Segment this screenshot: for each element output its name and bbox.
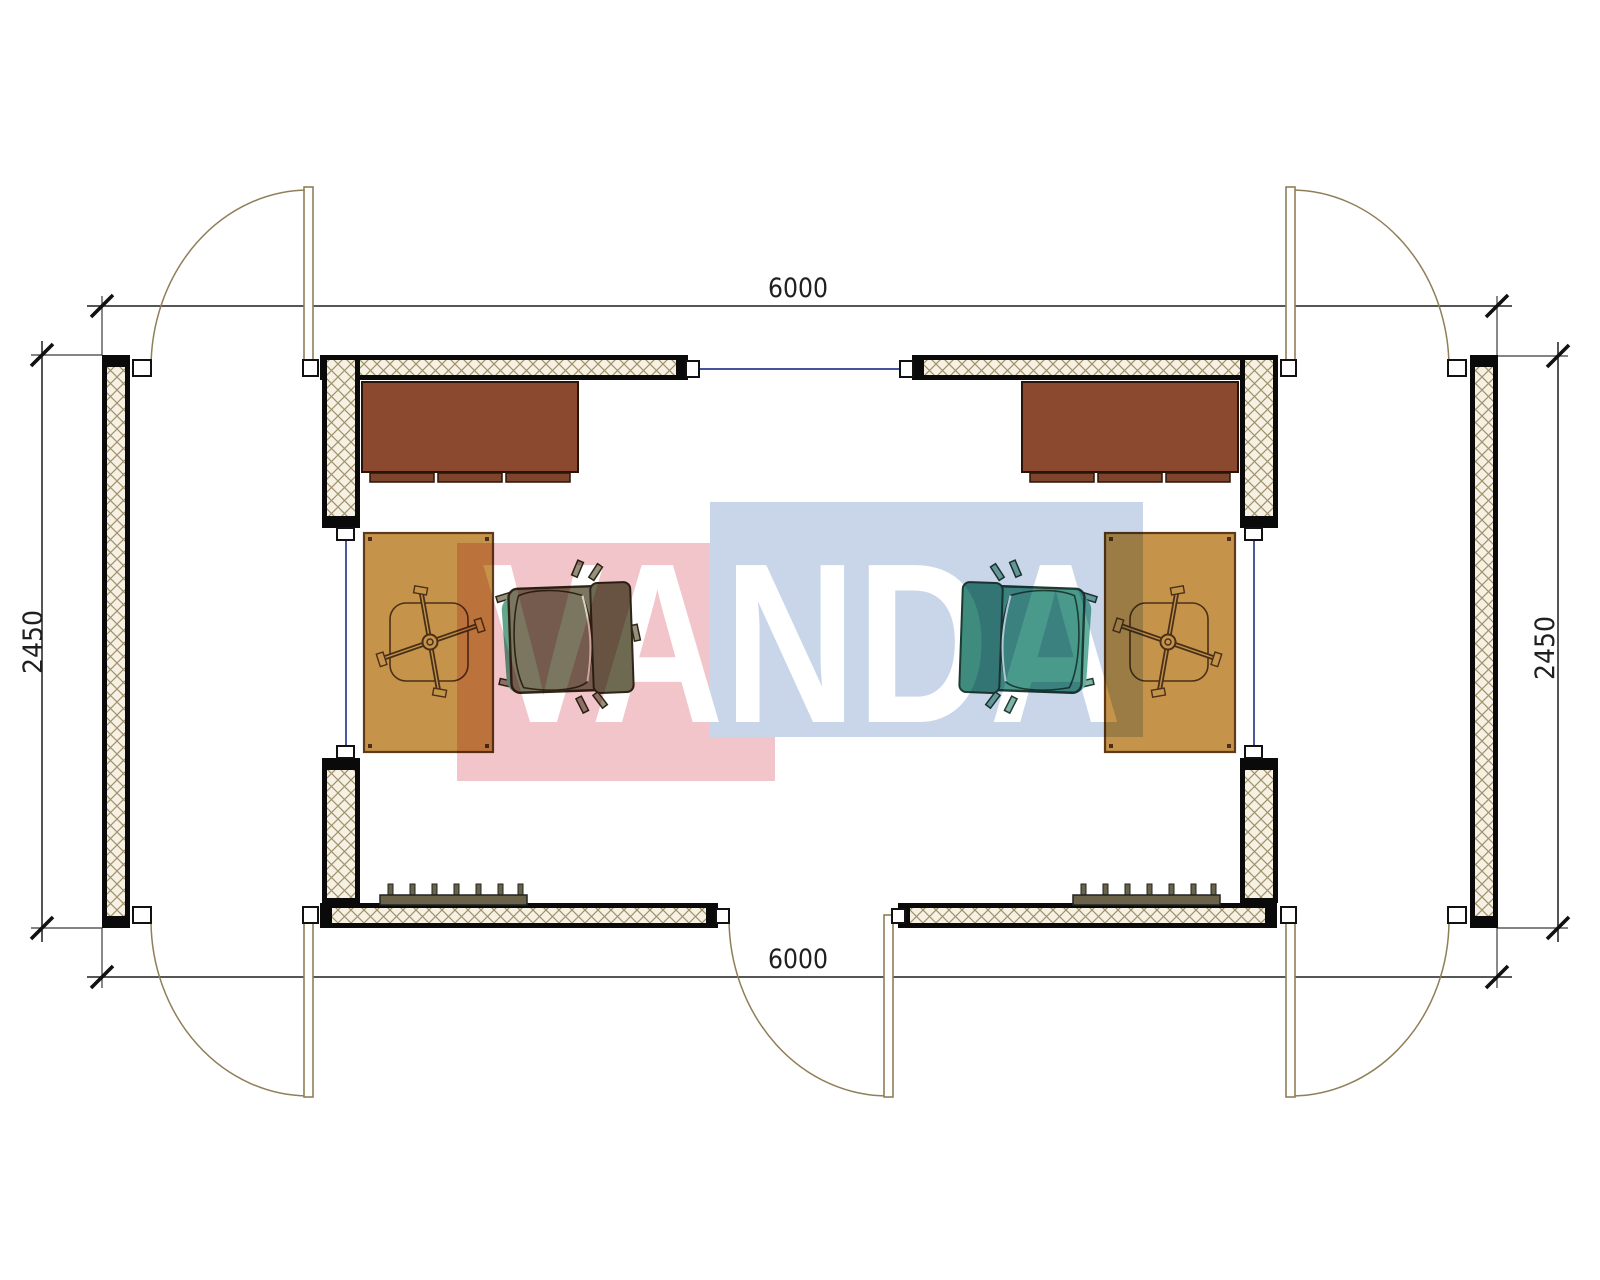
chair-hub bbox=[1161, 635, 1176, 650]
door-frame-block bbox=[716, 909, 729, 923]
dim-label-right-2450: 2450 bbox=[1530, 616, 1561, 680]
window-connector bbox=[337, 528, 354, 540]
door-arc-bottom-left bbox=[151, 921, 308, 1096]
chair-caster bbox=[1151, 688, 1165, 697]
door-frame-block bbox=[133, 360, 151, 376]
wall-partition-left-top bbox=[322, 355, 360, 528]
wall-partition-right-bottom bbox=[1240, 758, 1278, 903]
chair-caster bbox=[433, 688, 447, 697]
radiator-right bbox=[1073, 884, 1220, 905]
dim-label-left-2450: 2450 bbox=[18, 610, 49, 674]
wall-bottom-right bbox=[898, 903, 1277, 928]
door-frame-block bbox=[303, 907, 318, 923]
door-leaf-top-left bbox=[304, 187, 313, 368]
door-leaf-bottom-left bbox=[304, 915, 313, 1097]
floor-plan-screenshot: 6000 6000 2450 2450 bbox=[0, 0, 1600, 1280]
door-frame-block bbox=[1448, 360, 1466, 376]
door-arc-top-right bbox=[1291, 190, 1449, 368]
radiator-left bbox=[380, 884, 527, 905]
desk-drawer bbox=[438, 473, 502, 482]
door-frame-block bbox=[1448, 907, 1466, 923]
door-frame-block bbox=[892, 909, 905, 923]
wall-bottom-left bbox=[320, 903, 718, 928]
door-leaf-bottom-right bbox=[1286, 915, 1295, 1097]
desk-drawer bbox=[1166, 473, 1230, 482]
door-leaf-bottom-center bbox=[884, 915, 893, 1097]
dim-label-top-6000: 6000 bbox=[768, 273, 828, 304]
window-connector bbox=[686, 361, 699, 377]
chair-hub bbox=[423, 635, 438, 650]
wall-partition-right-top bbox=[1240, 355, 1278, 528]
door-arc-top-left bbox=[151, 190, 308, 368]
chair-caster bbox=[414, 586, 428, 595]
wall-left-end bbox=[102, 355, 130, 928]
door-leaf-top-right bbox=[1286, 187, 1295, 368]
desk-drawer bbox=[1030, 473, 1094, 482]
door-frame-block bbox=[1281, 360, 1296, 376]
wall-top-left bbox=[320, 355, 688, 380]
window-connector bbox=[1245, 528, 1262, 540]
watermark: VANDA bbox=[457, 502, 1143, 781]
watermark-text: VANDA bbox=[482, 517, 1122, 771]
desk-drawer bbox=[506, 473, 570, 482]
desk-right bbox=[1022, 382, 1238, 482]
wall-partition-left-bottom bbox=[322, 758, 360, 903]
window-connector bbox=[337, 746, 354, 758]
chair-caster bbox=[1170, 586, 1184, 595]
dim-label-bottom-6000: 6000 bbox=[768, 944, 828, 975]
desk-drawer bbox=[370, 473, 434, 482]
door-arc-bottom-right bbox=[1291, 921, 1449, 1096]
door-frame-block bbox=[1281, 907, 1296, 923]
window-connector bbox=[900, 361, 913, 377]
door-frame-block bbox=[303, 360, 318, 376]
wall-right-end bbox=[1470, 355, 1498, 928]
window-connector bbox=[1245, 746, 1262, 758]
door-frame-block bbox=[133, 907, 151, 923]
wall-top-right bbox=[912, 355, 1277, 380]
desk-drawer bbox=[1098, 473, 1162, 482]
floor-plan-canvas: 6000 6000 2450 2450 bbox=[0, 0, 1600, 1280]
desk-left bbox=[362, 382, 578, 482]
